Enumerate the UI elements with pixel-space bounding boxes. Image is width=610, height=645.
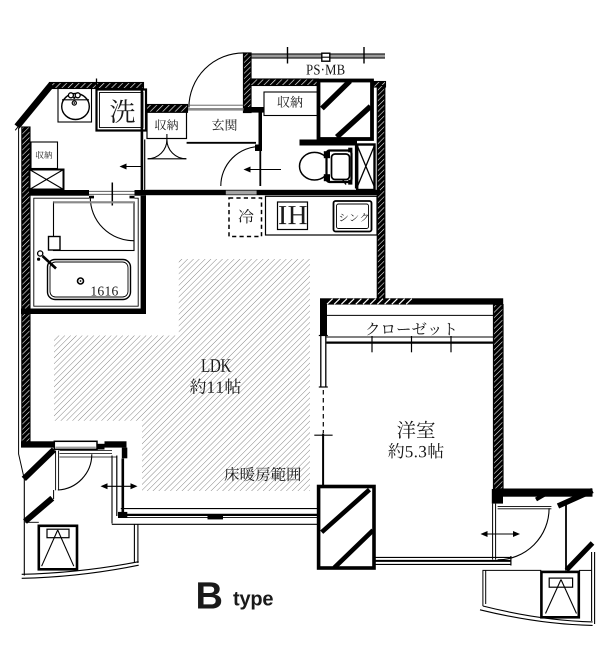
svg-text:type: type: [233, 589, 273, 611]
svg-text:B: B: [196, 576, 223, 618]
